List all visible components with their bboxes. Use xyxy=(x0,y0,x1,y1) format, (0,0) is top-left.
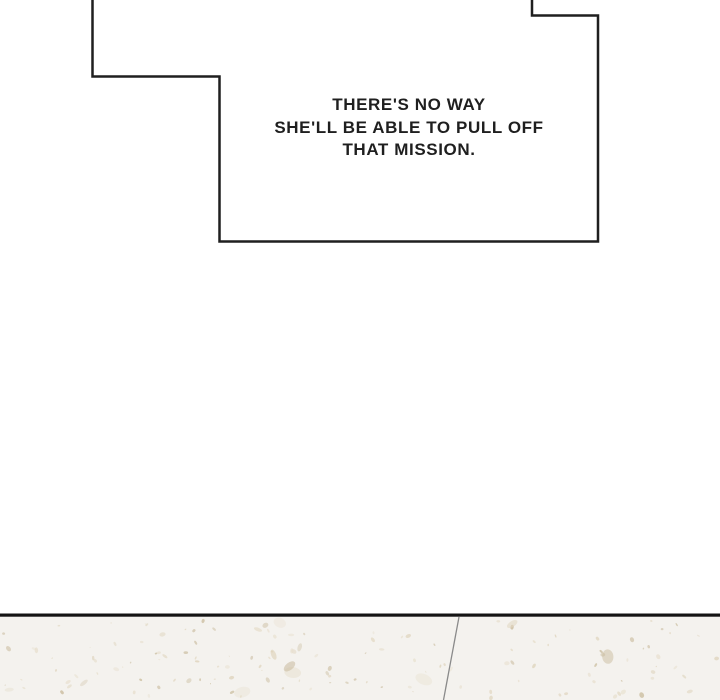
bubble-line: THERE'S NO WAY xyxy=(219,94,599,117)
floor-speckle xyxy=(184,651,189,654)
floor xyxy=(0,614,720,700)
speech-bubble-text: THERE'S NO WAY SHE'LL BE ABLE TO PULL OF… xyxy=(219,94,599,162)
bubble-line: THAT MISSION. xyxy=(219,139,599,162)
comic-panel: THERE'S NO WAY SHE'LL BE ABLE TO PULL OF… xyxy=(0,0,720,700)
floor-edge-line xyxy=(0,614,720,617)
bubble-line: SHE'LL BE ABLE TO PULL OFF xyxy=(219,117,599,140)
